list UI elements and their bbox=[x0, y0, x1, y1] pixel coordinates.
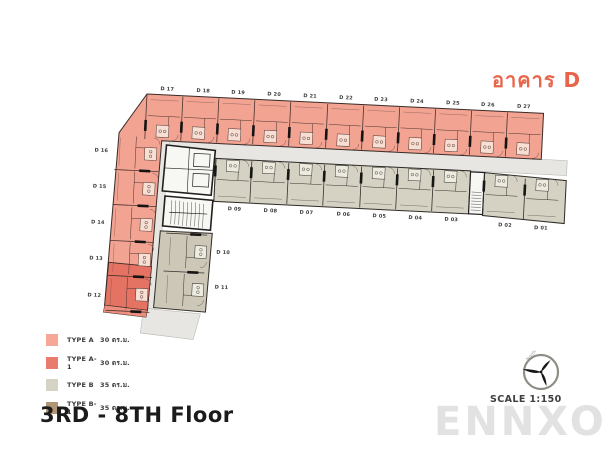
floor-range-title: 3RD - 8TH Floor bbox=[40, 403, 234, 427]
legend-type-label: TYPE A-1 bbox=[67, 355, 100, 371]
unit-label: D 06 bbox=[336, 211, 350, 218]
legend-row-type-b: TYPE B 35 ตร.ม. bbox=[46, 374, 130, 397]
unit-label: D 17 bbox=[160, 86, 174, 93]
north-compass: North bbox=[522, 349, 558, 389]
unit-label: D 25 bbox=[446, 100, 460, 107]
unit-label: D 10 bbox=[216, 250, 230, 257]
unit-label: D 13 bbox=[89, 255, 103, 262]
unit-label: D 16 bbox=[94, 148, 108, 155]
legend-area-label: 30 ตร.ม. bbox=[100, 335, 130, 345]
unit-label: D 15 bbox=[93, 183, 107, 190]
building-title: อาคาร D bbox=[492, 64, 581, 96]
unit-label: D 20 bbox=[267, 91, 281, 98]
watermark: ENNXO bbox=[434, 399, 607, 445]
unit-label: D 21 bbox=[303, 93, 317, 100]
unit-label: D 18 bbox=[196, 88, 210, 95]
unit-label: D 03 bbox=[444, 217, 458, 224]
type-b-swatch bbox=[46, 379, 58, 391]
unit-label: D 23 bbox=[374, 97, 388, 104]
unit-label: D 19 bbox=[231, 90, 245, 97]
floor-plan-page: D 17 D 18 D 19 D 20 D 21 D 22 D 23 D 24 … bbox=[0, 0, 613, 460]
legend-row-type-a: TYPE A 30 ตร.ม. bbox=[46, 329, 130, 352]
legend-type-label: TYPE B bbox=[67, 381, 100, 389]
stair-core bbox=[162, 196, 213, 230]
unit-label: D 04 bbox=[408, 215, 422, 222]
legend-type-label: TYPE A bbox=[67, 336, 100, 344]
legend-row-type-a1: TYPE A-1 30 ตร.ม. bbox=[46, 352, 130, 375]
type-a1-swatch bbox=[46, 357, 58, 369]
unit-d12-type-a1 bbox=[104, 262, 151, 310]
east-stair-core bbox=[469, 172, 485, 215]
unit-label: D 08 bbox=[263, 208, 277, 215]
unit-label: D 05 bbox=[372, 213, 386, 220]
unit-label: D 24 bbox=[410, 98, 424, 105]
unit-label: D 11 bbox=[214, 285, 228, 292]
unit-label: D 22 bbox=[339, 95, 353, 102]
unit-label: D 12 bbox=[87, 292, 101, 299]
elevator-core bbox=[162, 145, 215, 195]
unit-label: D 09 bbox=[228, 206, 242, 213]
type-a-swatch bbox=[46, 334, 58, 346]
unit-label: D 01 bbox=[534, 225, 548, 232]
unit-label: D 26 bbox=[481, 102, 495, 109]
unit-label: D 14 bbox=[91, 219, 105, 226]
unit-label: D 02 bbox=[498, 222, 512, 229]
unit-label: D 07 bbox=[299, 210, 313, 217]
unit-label: D 27 bbox=[517, 104, 531, 111]
legend-area-label: 35 ตร.ม. bbox=[100, 380, 130, 390]
legend-area-label: 30 ตร.ม. bbox=[100, 358, 130, 368]
